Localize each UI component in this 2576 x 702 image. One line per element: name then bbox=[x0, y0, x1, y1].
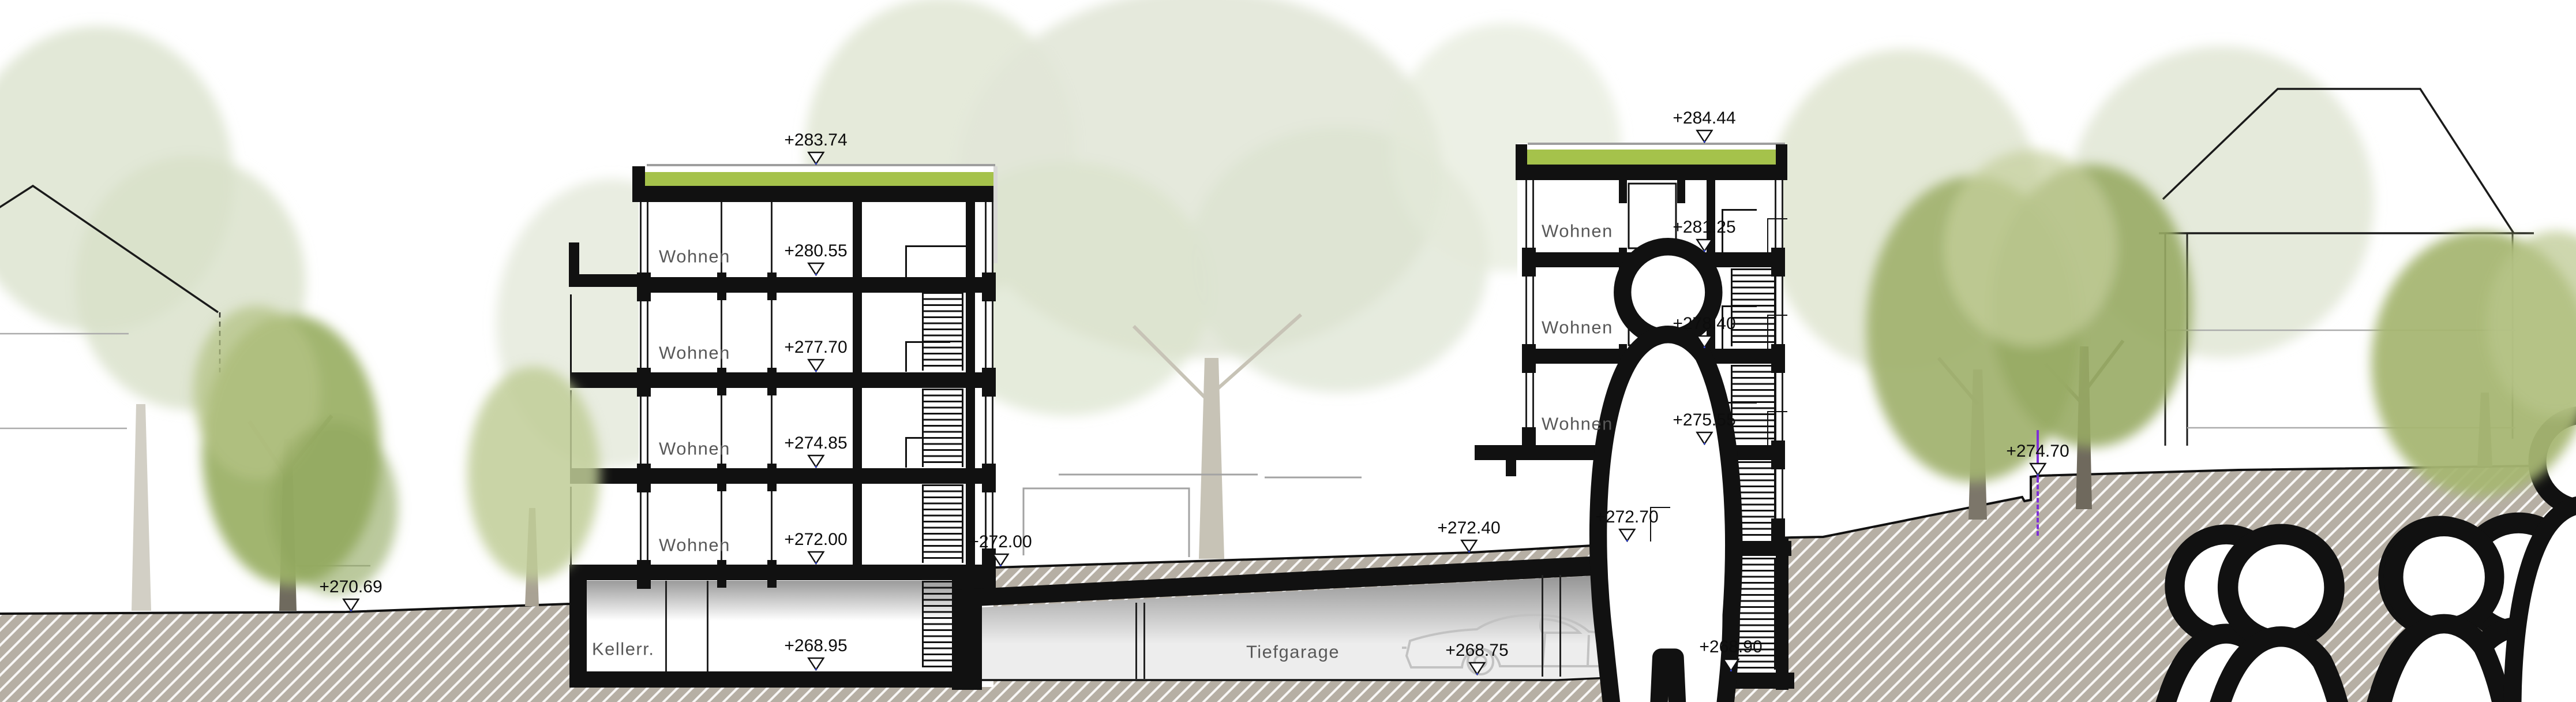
balcony-railing bbox=[570, 294, 572, 372]
boundary-line-below-ground bbox=[2037, 478, 2039, 536]
basement-partition bbox=[707, 581, 708, 671]
stair-flight bbox=[1731, 461, 1776, 539]
level-triangle-icon bbox=[1696, 335, 1713, 349]
elevation-marker-floor: +281.25 bbox=[1673, 218, 1735, 252]
elevation-marker-basement: +268.90 bbox=[1699, 637, 1762, 672]
level-triangle-icon bbox=[1696, 238, 1713, 252]
garage-column bbox=[1542, 575, 1561, 677]
elevation-marker-site-left: +270.69 bbox=[319, 577, 382, 612]
elevation-marker-floor: +275.55 bbox=[1673, 410, 1735, 445]
level-triangle-icon bbox=[2029, 462, 2046, 476]
dimension-mark bbox=[1767, 315, 1787, 349]
level-triangle-icon bbox=[807, 551, 824, 565]
elevation-marker-floor: +272.00 bbox=[784, 530, 847, 565]
roof-parapet bbox=[1516, 144, 1527, 180]
level-triangle-icon bbox=[1722, 658, 1739, 672]
basement-floor-slab bbox=[569, 671, 976, 688]
railing-mark bbox=[905, 437, 950, 468]
level-triangle-icon bbox=[807, 657, 824, 671]
railing-mark bbox=[905, 245, 970, 277]
room-label-wohnen: Wohnen bbox=[1542, 415, 1613, 433]
roof-parapet bbox=[1776, 144, 1787, 180]
elevation-marker-floor: +274.85 bbox=[784, 434, 847, 468]
basement-wall bbox=[1776, 537, 1788, 690]
eave-fascia bbox=[993, 166, 998, 263]
elevation-marker-garage: +268.75 bbox=[1445, 641, 1508, 675]
elevation-marker-floor: +277.70 bbox=[784, 338, 847, 372]
elevation-marker-site-courtyard: +272.00 bbox=[969, 532, 1032, 567]
room-label-wohnen: Wohnen bbox=[659, 248, 730, 266]
level-triangle-icon bbox=[1460, 539, 1478, 553]
room-label-wohnen: Wohnen bbox=[1542, 319, 1613, 337]
section-drawing: Wohnen Wohnen Wohnen Wohnen Kellerr. Woh… bbox=[0, 0, 2576, 702]
green-roof bbox=[644, 172, 993, 186]
roof-slab bbox=[1520, 165, 1783, 180]
drawing-canvas bbox=[0, 0, 2576, 702]
room-label-wohnen: Wohnen bbox=[659, 344, 730, 362]
basement-partition bbox=[665, 581, 667, 671]
level-triangle-icon bbox=[807, 262, 824, 276]
room-label-wohnen: Wohnen bbox=[1542, 222, 1613, 240]
elevation-marker-roof-left: +283.74 bbox=[784, 130, 847, 165]
level-triangle-icon bbox=[1696, 129, 1713, 143]
elevation-marker-roof-right: +284.44 bbox=[1673, 109, 1735, 143]
elevation-marker-floor: +278.40 bbox=[1673, 314, 1735, 349]
elevation-marker-site-right-building: +272.40 bbox=[1437, 518, 1500, 553]
room-label-wohnen: Wohnen bbox=[659, 440, 730, 458]
floor-slab bbox=[639, 372, 993, 388]
elevation-marker-basement: +268.95 bbox=[784, 636, 847, 671]
level-triangle-icon bbox=[807, 359, 824, 372]
level-triangle-icon bbox=[1696, 431, 1713, 445]
roof-slab bbox=[639, 186, 993, 202]
elevation-marker-floor: +280.55 bbox=[784, 241, 847, 276]
floor-slab bbox=[639, 277, 993, 293]
railing-mark bbox=[905, 341, 950, 372]
mid-background-building bbox=[1023, 475, 1362, 557]
garage-column bbox=[1135, 603, 1145, 679]
level-triangle-icon bbox=[992, 553, 1009, 567]
level-triangle-icon bbox=[807, 151, 824, 165]
elevation-marker-ground-floor: +272.70 bbox=[1595, 507, 1658, 542]
room-label-tiefgarage: Tiefgarage bbox=[1246, 643, 1340, 661]
level-triangle-icon bbox=[1468, 662, 1486, 675]
room-label-keller: Kellerr. bbox=[592, 640, 654, 658]
stair-flight bbox=[922, 484, 963, 563]
floor-slab bbox=[639, 565, 993, 580]
floor-slab bbox=[639, 468, 993, 484]
room-label-wohnen: Wohnen bbox=[659, 536, 730, 554]
dimension-mark bbox=[1767, 218, 1787, 253]
roof-parapet bbox=[632, 166, 645, 202]
level-triangle-icon bbox=[807, 454, 824, 468]
stair-flight bbox=[922, 581, 963, 667]
level-triangle-icon bbox=[342, 598, 359, 612]
basement-wall bbox=[569, 565, 587, 687]
green-roof bbox=[1527, 150, 1776, 165]
balcony-parapet bbox=[569, 242, 579, 287]
level-triangle-icon bbox=[1618, 528, 1636, 542]
elevation-marker-site-right: +274.70 bbox=[2006, 442, 2069, 476]
interior-wall bbox=[853, 202, 862, 580]
dimension-mark bbox=[1767, 411, 1787, 446]
terrace-wall-stub bbox=[1506, 460, 1516, 476]
